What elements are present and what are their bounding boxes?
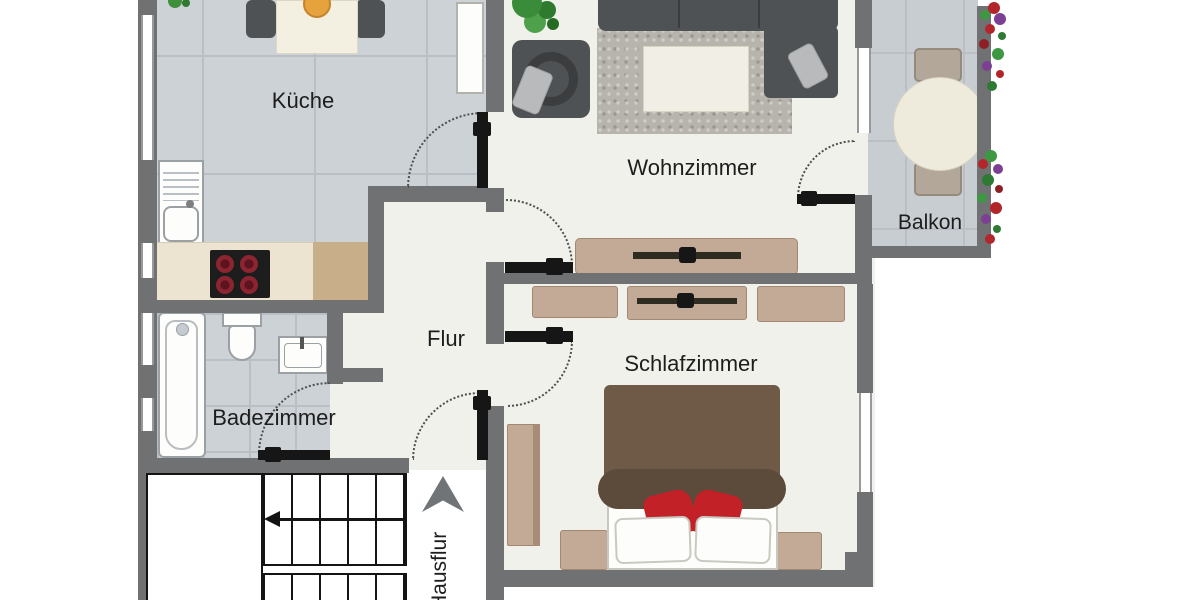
floorplan: Küche Wohnzimmer Balkon Flur Schlafzimme…: [0, 0, 1200, 600]
dresser-knob: [677, 293, 694, 308]
wall-corner-block: [845, 552, 873, 587]
stair-landing: [146, 473, 263, 600]
room-label-kueche: Küche: [272, 88, 334, 114]
sink-basin: [163, 206, 199, 242]
refrigerator: [456, 2, 484, 94]
wall-bedroom-right-upper: [857, 284, 873, 393]
room-label-schlafzimmer: Schlafzimmer: [624, 351, 757, 377]
stove-burner: [216, 276, 234, 294]
staircase-lower-flight: [263, 573, 407, 600]
wall-living-bedroom: [486, 273, 862, 284]
flower-box-top-icon: [988, 2, 1000, 14]
wall-living-right-bottom: [855, 195, 872, 284]
living-room-door-handle: [546, 258, 563, 275]
bathtub-inner: [165, 320, 198, 450]
room-label-hausflur: Hausflur: [428, 532, 452, 600]
room-label-balkon: Balkon: [898, 211, 962, 235]
toilet-bowl: [228, 325, 256, 361]
stair-arrow-icon: [264, 511, 280, 527]
washbasin-faucet-icon: [300, 337, 304, 349]
wardrobe-edge: [533, 424, 540, 546]
wall-kitchen-right-stub: [486, 188, 504, 212]
room-label-badezimmer: Badezimmer: [212, 405, 335, 431]
bathtub-faucet-icon: [176, 323, 189, 336]
wall-bathroom-top: [138, 300, 380, 313]
sink-faucet-icon: [186, 200, 194, 208]
kitchen-chair-left: [246, 0, 276, 38]
stair-direction-line: [280, 518, 406, 521]
cooktop: [210, 250, 270, 298]
bed-pillow-right: [694, 516, 772, 565]
kitchen-door-handle: [473, 122, 491, 136]
balcony-door-handle: [801, 191, 817, 206]
sideboard-knob: [679, 247, 696, 263]
entrance-door-handle: [473, 396, 491, 410]
flower-box-bottom-icon: [985, 150, 997, 162]
nightstand-right: [776, 532, 822, 570]
sofa-seam: [678, 0, 680, 28]
nightstand-left: [560, 530, 608, 570]
balcony-railing-right: [977, 6, 991, 258]
stove-burner: [240, 276, 258, 294]
kitchen-window: [141, 15, 154, 160]
bathroom-door-handle: [265, 447, 281, 462]
wall-bathroom-stub: [327, 368, 383, 382]
bathroom-window-small: [141, 398, 154, 431]
dresser-left: [532, 286, 618, 318]
kitchen-window-small: [141, 243, 154, 278]
room-label-flur: Flur: [427, 326, 465, 352]
sofa-seam: [758, 0, 760, 28]
sink-drainboard: [163, 167, 199, 201]
kitchen-countertop-wood: [313, 242, 370, 302]
bedroom-door-handle: [546, 327, 563, 344]
wall-kitchen-right-upper: [486, 0, 504, 112]
wall-living-right-top: [855, 0, 872, 48]
room-label-wohnzimmer: Wohnzimmer: [627, 155, 756, 181]
balcony-railing-bottom: [868, 246, 990, 258]
stove-burner: [240, 255, 258, 273]
kitchen-chair-right: [355, 0, 385, 38]
living-room-window: [857, 48, 871, 133]
bed-pillow-left: [614, 516, 692, 565]
wall-kitchen-flur-horizontal: [368, 186, 488, 202]
coffee-table: [643, 46, 749, 112]
stove-burner: [216, 255, 234, 273]
wall-kitchen-flur-vertical: [368, 186, 384, 313]
balcony-table: [893, 77, 987, 171]
bedroom-window: [859, 393, 872, 492]
dresser-right: [757, 286, 845, 322]
wall-bedroom-bottom: [490, 570, 873, 587]
